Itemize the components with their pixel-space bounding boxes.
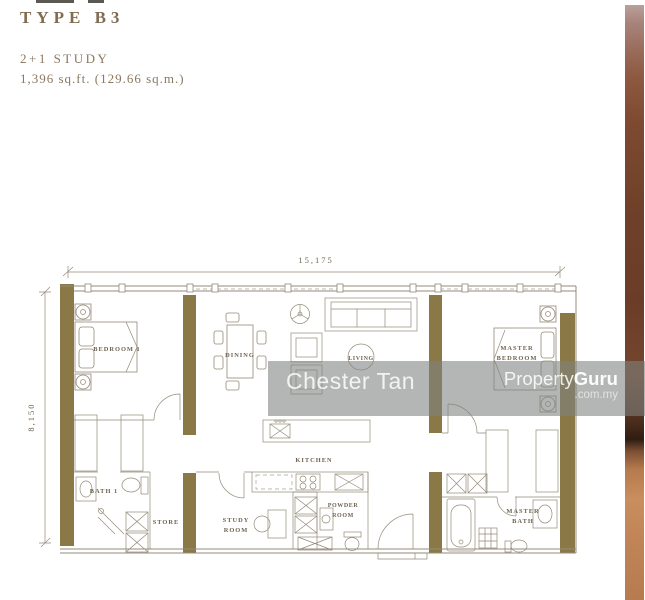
kitchen-island-icon xyxy=(263,420,370,442)
label-powder-room: POWDER xyxy=(328,503,359,509)
label-bedroom1: BEDROOM 1 xyxy=(93,346,141,353)
floor-plan-drawing: 15,175 8,150 xyxy=(0,0,645,600)
utility-cabinets-icon xyxy=(295,497,332,550)
bedroom1-wardrobe-icon xyxy=(75,415,143,471)
dimension-height: 8,150 xyxy=(26,287,51,547)
door-swings xyxy=(154,394,516,549)
watermark-band: Chester Tan PropertyGuru .com.my xyxy=(268,361,645,416)
label-dining: DINING xyxy=(225,352,255,359)
propertyguru-domain: .com.my xyxy=(575,389,618,401)
ceiling-fan-icon xyxy=(291,305,310,324)
svg-text:8,150: 8,150 xyxy=(26,402,36,431)
svg-text:ROOM: ROOM xyxy=(332,513,354,519)
kitchen-counter-icon xyxy=(252,472,368,492)
master-bath-fixtures-icon xyxy=(447,499,557,552)
label-master-bedroom: MASTER xyxy=(500,345,533,352)
agent-watermark: Chester Tan xyxy=(286,368,415,395)
label-master-bath: MASTER xyxy=(506,508,539,515)
living-sofa-icon xyxy=(325,298,417,331)
svg-text:BATH: BATH xyxy=(512,518,534,525)
svg-text:15,175: 15,175 xyxy=(298,255,333,265)
label-store: STORE xyxy=(153,519,180,526)
propertyguru-logo: PropertyGuru xyxy=(504,368,618,390)
master-wardrobe-icon xyxy=(447,430,558,493)
label-kitchen: KITCHEN xyxy=(295,457,332,464)
label-study-room: STUDY xyxy=(223,517,250,524)
svg-text:ROOM: ROOM xyxy=(224,527,249,534)
label-bath1: BATH 1 xyxy=(90,488,118,495)
study-desk-icon xyxy=(254,510,286,538)
dimension-width: 15,175 xyxy=(63,255,565,278)
floorplan-page: TYPE B3 2+1 STUDY 1,396 sq.ft. (129.66 s… xyxy=(0,0,645,600)
